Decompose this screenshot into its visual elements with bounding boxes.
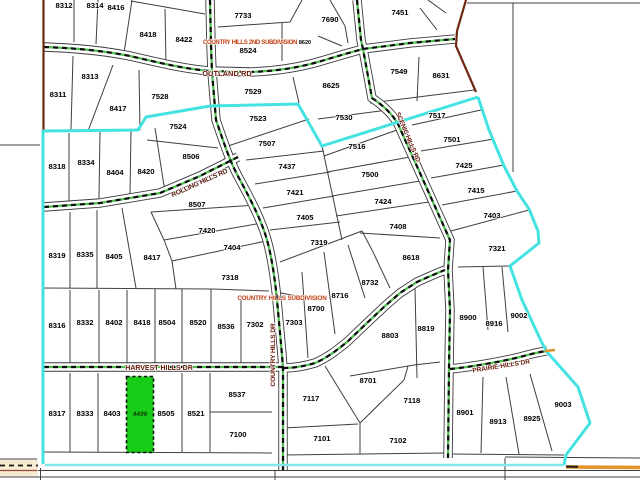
svg-text:8625: 8625	[322, 81, 340, 90]
svg-text:8504: 8504	[158, 318, 176, 327]
svg-text:7405: 7405	[296, 213, 314, 222]
svg-text:7517: 7517	[428, 111, 445, 120]
svg-text:7415: 7415	[467, 186, 485, 195]
svg-text:9003: 9003	[554, 400, 571, 409]
svg-text:8417: 8417	[109, 104, 126, 113]
svg-text:8631: 8631	[432, 71, 450, 80]
svg-text:COUNTRY HILLS SUBDIVISION: COUNTRY HILLS SUBDIVISION	[237, 295, 327, 302]
svg-text:COUNTRY HILLS DR: COUNTRY HILLS DR	[270, 323, 277, 387]
svg-text:8803: 8803	[381, 331, 398, 340]
svg-text:8916: 8916	[485, 319, 502, 328]
svg-text:8537: 8537	[228, 390, 245, 399]
svg-text:7530: 7530	[335, 113, 352, 122]
svg-text:8925: 8925	[523, 414, 541, 423]
svg-text:8618: 8618	[402, 253, 420, 262]
svg-text:8313: 8313	[81, 72, 98, 81]
svg-text:COUNTRY HILLS 2ND SUBDIVISION: COUNTRY HILLS 2ND SUBDIVISION	[203, 40, 297, 46]
svg-text:8316: 8316	[48, 321, 65, 330]
svg-text:OUTLAND RD: OUTLAND RD	[202, 69, 252, 78]
svg-text:8701: 8701	[359, 376, 377, 385]
svg-text:8333: 8333	[76, 409, 93, 418]
svg-text:7318: 7318	[221, 273, 239, 282]
svg-text:9002: 9002	[510, 311, 527, 320]
svg-text:8521: 8521	[187, 409, 205, 418]
svg-text:7117: 7117	[303, 394, 320, 403]
svg-text:8507: 8507	[188, 200, 205, 209]
svg-text:7101: 7101	[313, 434, 331, 443]
svg-text:8536: 8536	[217, 322, 234, 331]
svg-text:7690: 7690	[321, 15, 338, 24]
svg-text:8335: 8335	[76, 250, 94, 259]
svg-text:8405: 8405	[105, 252, 123, 261]
svg-text:7321: 7321	[488, 244, 506, 253]
svg-text:7319: 7319	[310, 238, 327, 247]
svg-text:7507: 7507	[258, 139, 275, 148]
svg-text:7549: 7549	[390, 67, 407, 76]
svg-text:8318: 8318	[48, 162, 66, 171]
svg-text:7404: 7404	[223, 243, 241, 252]
svg-text:8900: 8900	[459, 313, 476, 322]
svg-text:7733: 7733	[234, 11, 251, 20]
svg-text:8420: 8420	[137, 167, 154, 176]
svg-text:4496: 4496	[132, 411, 148, 418]
svg-text:7528: 7528	[151, 92, 169, 101]
svg-text:7420: 7420	[198, 226, 215, 235]
svg-text:7529: 7529	[244, 87, 261, 96]
svg-text:7425: 7425	[455, 161, 473, 170]
svg-text:8402: 8402	[105, 318, 122, 327]
svg-text:8716: 8716	[331, 291, 348, 300]
svg-text:8332: 8332	[76, 318, 93, 327]
svg-text:7102: 7102	[389, 436, 406, 445]
svg-text:8334: 8334	[77, 158, 95, 167]
svg-text:7403: 7403	[483, 211, 500, 220]
svg-text:8620: 8620	[299, 40, 311, 46]
svg-text:8732: 8732	[361, 278, 378, 287]
svg-text:7303: 7303	[285, 318, 302, 327]
svg-text:7118: 7118	[404, 396, 421, 405]
svg-text:7501: 7501	[443, 135, 461, 144]
svg-text:8505: 8505	[157, 409, 175, 418]
svg-text:8418: 8418	[133, 318, 151, 327]
svg-text:8524: 8524	[239, 46, 257, 55]
svg-text:7100: 7100	[229, 430, 246, 439]
svg-text:8311: 8311	[50, 90, 67, 99]
svg-text:7424: 7424	[374, 197, 392, 206]
svg-text:7421: 7421	[286, 188, 304, 197]
svg-text:8319: 8319	[48, 251, 65, 260]
svg-text:7437: 7437	[278, 162, 295, 171]
svg-text:8520: 8520	[189, 318, 206, 327]
svg-text:8404: 8404	[106, 168, 124, 177]
svg-text:8422: 8422	[175, 35, 192, 44]
svg-text:8418: 8418	[139, 30, 157, 39]
svg-text:7516: 7516	[348, 142, 365, 151]
svg-text:8913: 8913	[489, 417, 506, 426]
svg-text:8819: 8819	[417, 324, 434, 333]
svg-text:8417: 8417	[143, 253, 160, 262]
svg-text:8317: 8317	[48, 409, 65, 418]
svg-text:7523: 7523	[249, 114, 266, 123]
svg-text:8403: 8403	[103, 409, 120, 418]
svg-text:7500: 7500	[361, 170, 378, 179]
svg-text:8700: 8700	[307, 304, 324, 313]
svg-text:8312: 8312	[55, 1, 72, 10]
svg-text:7408: 7408	[389, 222, 407, 231]
svg-text:7302: 7302	[246, 320, 263, 329]
svg-text:8901: 8901	[456, 408, 474, 417]
svg-text:8314: 8314	[86, 1, 104, 10]
svg-text:8416: 8416	[107, 3, 124, 12]
svg-text:7451: 7451	[391, 8, 409, 17]
svg-text:HARVEST HILLS DR: HARVEST HILLS DR	[125, 365, 193, 372]
svg-text:7524: 7524	[169, 122, 187, 131]
svg-text:8506: 8506	[182, 152, 199, 161]
